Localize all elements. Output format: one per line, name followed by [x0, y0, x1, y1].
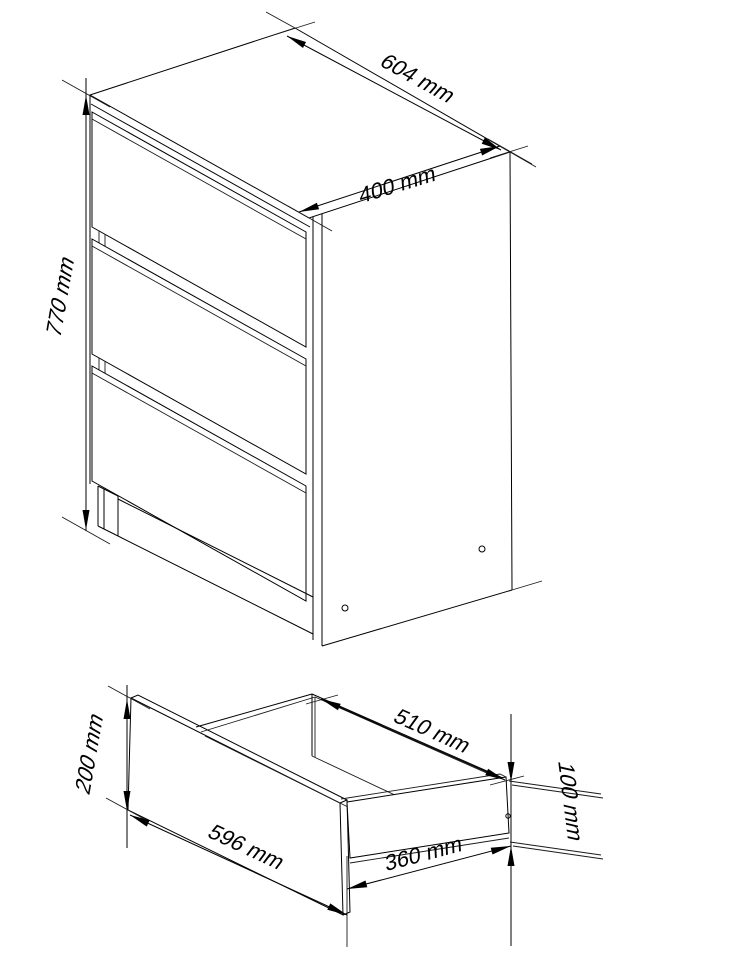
cabinet-view: 604 mm 400 mm 770 mm: [41, 12, 542, 646]
cabinet-height-label: 770 mm: [41, 250, 78, 342]
arrowhead-icon: [124, 699, 131, 719]
extension-line: [266, 12, 295, 28]
furniture-dimension-drawing: 604 mm 400 mm 770 mm: [0, 0, 749, 960]
arrowhead-icon: [83, 510, 90, 530]
drawer-side-height-label: 100 mm: [553, 759, 589, 844]
drawer-left-side-top-edge: [196, 694, 312, 727]
drawer-left-side-top-inner: [201, 697, 315, 732]
technical-drawing-page: 604 mm 400 mm 770 mm: [0, 0, 749, 960]
arrowhead-icon: [347, 881, 367, 890]
cabinet-side-bottom-edge: [322, 590, 512, 646]
drawer-front-panel: [128, 698, 343, 915]
extension-line: [510, 842, 601, 855]
cabinet-side-hole-back: [479, 546, 485, 552]
extension-line: [513, 846, 603, 859]
extension-line: [509, 781, 601, 794]
arrowhead-icon: [321, 699, 341, 710]
arrowhead-icon: [491, 846, 511, 855]
cabinet-side-back-edge: [510, 152, 512, 590]
drawer-front-height-label: 200 mm: [70, 707, 107, 799]
arrowhead-icon: [83, 95, 90, 115]
drawer-back-width-dimension: 510 mm: [306, 695, 524, 785]
cabinet-side-hole-front: [342, 605, 348, 611]
extension-line: [510, 152, 536, 167]
arrowhead-icon: [508, 846, 515, 866]
drawer-side-height-dimension: 100 mm: [508, 714, 604, 946]
cabinet-floor-extension-right: [512, 581, 542, 590]
drawer-view: 200 mm 596 mm 510 mm 360 mm: [70, 685, 603, 947]
